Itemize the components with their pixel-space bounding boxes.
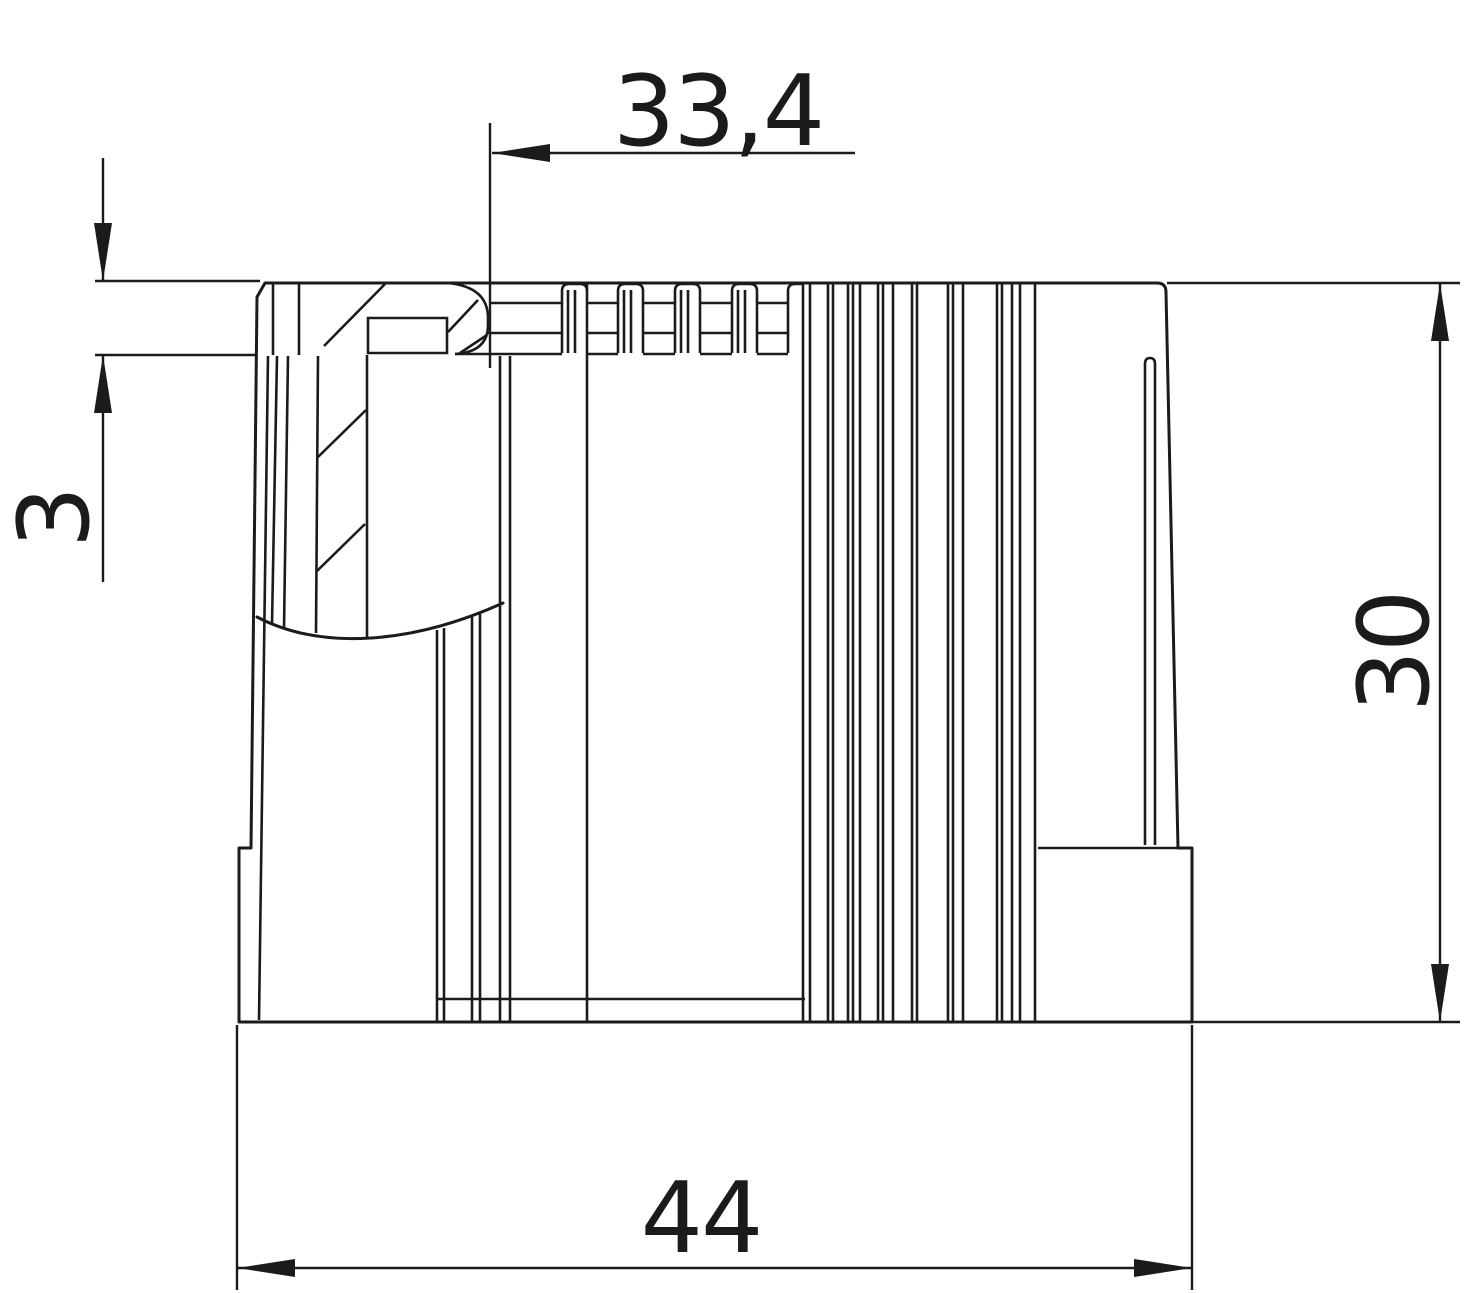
right-section-details [437,358,1178,999]
dimension-lip-height: 3 [0,158,260,582]
dimension-overall-width: 44 [237,1025,1192,1290]
top-castellations [455,283,810,1022]
dimension-arrow [237,1259,295,1277]
extension-line [95,281,260,355]
drawing-page: 33,4 3 30 44 [0,0,1465,1293]
left-section-cut [257,283,510,1022]
dimension-arrow [1431,964,1449,1022]
dimension-arrow [492,144,550,162]
section-hatching [317,284,487,571]
technical-drawing-canvas: 33,4 3 30 44 [0,0,1465,1293]
rib-lines [828,283,1035,1022]
dimension-label-lip-height: 3 [0,488,112,548]
dimension-top-width: 33,4 [490,55,855,368]
dimension-arrow [94,355,112,413]
dimension-arrow [1431,283,1449,341]
part-silhouette [239,283,1192,1022]
dimension-arrow [1134,1259,1192,1277]
dimension-label-body-height: 30 [1338,592,1452,713]
dimension-label-overall-width: 44 [641,1162,762,1276]
dimension-arrow [94,223,112,281]
dimension-label-top-width: 33,4 [613,55,823,169]
dimension-body-height: 30 [1167,283,1460,1022]
